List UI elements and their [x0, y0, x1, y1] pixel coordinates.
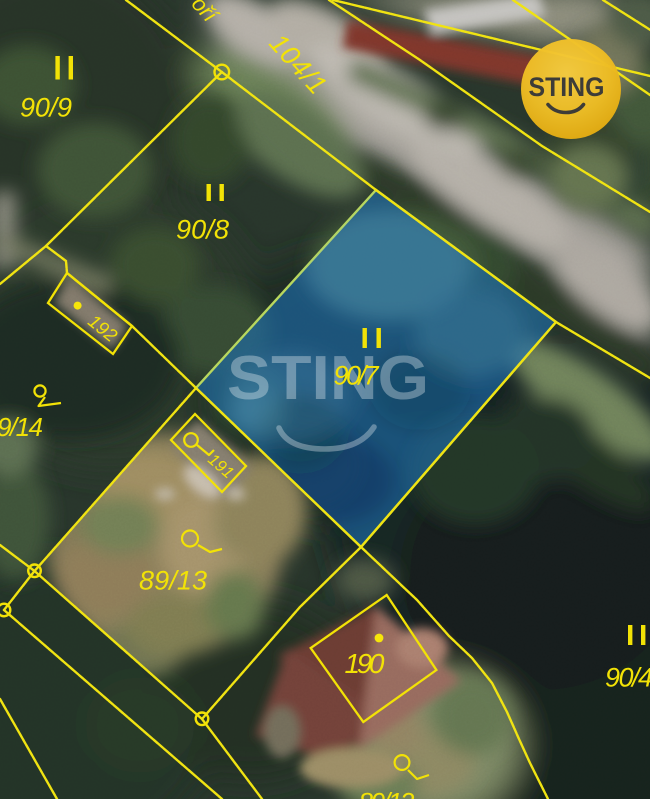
svg-text:90/7: 90/7: [334, 361, 380, 391]
svg-text:90/9: 90/9: [20, 93, 72, 123]
svg-text:89/12: 89/12: [359, 787, 416, 799]
svg-text:90/4: 90/4: [605, 663, 650, 693]
svg-text:89/13: 89/13: [139, 566, 207, 596]
svg-text:STING: STING: [529, 72, 605, 102]
svg-text:90/8: 90/8: [176, 215, 229, 245]
svg-text:9/14: 9/14: [0, 412, 43, 442]
svg-text:STING: STING: [227, 344, 429, 413]
svg-text:190: 190: [345, 648, 385, 679]
